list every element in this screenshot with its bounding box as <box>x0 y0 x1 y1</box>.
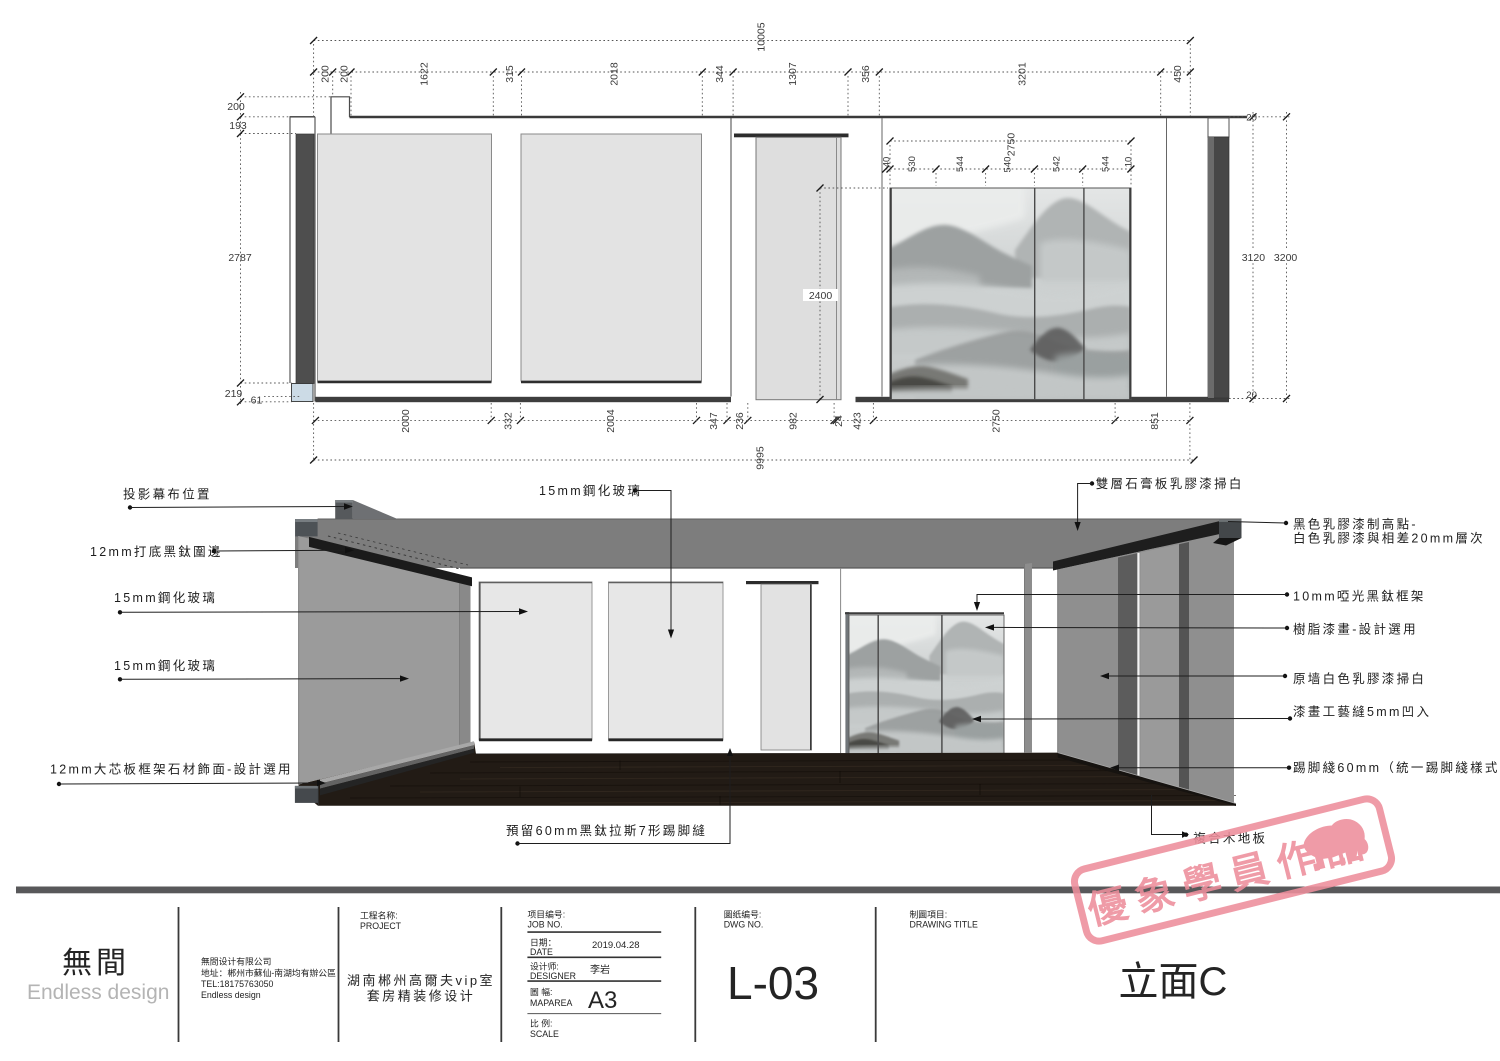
svg-text:540: 540 <box>1003 157 1014 173</box>
svg-text:219: 219 <box>225 388 243 400</box>
svg-text:SCALE: SCALE <box>530 1029 559 1039</box>
svg-text:15mm鋼化玻璃: 15mm鋼化玻璃 <box>114 659 217 673</box>
svg-text:982: 982 <box>787 412 799 430</box>
svg-text:200: 200 <box>227 101 245 113</box>
svg-text:踢脚綫60mm（統一踢脚綫樣式）: 踢脚綫60mm（統一踢脚綫樣式） <box>1293 760 1500 775</box>
svg-text:423: 423 <box>851 412 863 430</box>
svg-text:设计师:: 设计师: <box>530 961 559 972</box>
svg-text:542: 542 <box>1051 156 1062 172</box>
svg-text:2400: 2400 <box>809 290 833 302</box>
svg-text:450: 450 <box>1172 65 1184 83</box>
svg-text:L-03: L-03 <box>727 957 819 1009</box>
svg-text:DRAWING TITLE: DRAWING TITLE <box>910 920 979 930</box>
svg-text:套房精装修设计: 套房精装修设计 <box>367 989 476 1004</box>
svg-text:JOB NO.: JOB NO. <box>528 920 563 930</box>
svg-text:2750: 2750 <box>991 409 1003 433</box>
svg-text:356: 356 <box>860 65 872 83</box>
svg-text:12mm大芯板框架石材飾面-設計選用: 12mm大芯板框架石材飾面-設計選用 <box>50 761 293 776</box>
svg-text:24: 24 <box>833 415 845 427</box>
svg-text:344: 344 <box>714 65 726 83</box>
svg-text:日期：: 日期： <box>530 938 556 948</box>
svg-text:比 例:: 比 例: <box>530 1018 552 1029</box>
svg-text:3201: 3201 <box>1017 62 1029 86</box>
svg-text:3120: 3120 <box>1242 252 1266 264</box>
svg-text:20: 20 <box>1246 390 1257 401</box>
svg-text:236: 236 <box>734 412 746 430</box>
svg-text:15mm鋼化玻璃: 15mm鋼化玻璃 <box>114 591 217 605</box>
svg-text:9995: 9995 <box>755 446 767 470</box>
svg-text:無間: 無間 <box>62 947 130 980</box>
svg-text:544: 544 <box>955 156 966 172</box>
svg-text:Endless design: Endless design <box>27 981 169 1004</box>
svg-text:1307: 1307 <box>787 62 799 86</box>
svg-text:40: 40 <box>882 157 893 168</box>
svg-text:圖纸编号:: 圖纸编号: <box>724 909 762 920</box>
svg-text:10mm啞光黑鈦框架: 10mm啞光黑鈦框架 <box>1293 588 1426 603</box>
svg-text:15mm鋼化玻璃: 15mm鋼化玻璃 <box>539 484 642 498</box>
svg-text:项目编号:: 项目编号: <box>528 909 566 920</box>
svg-text:白色乳膠漆與相差20mm層次: 白色乳膠漆與相差20mm層次 <box>1293 530 1485 545</box>
svg-text:530: 530 <box>907 156 918 172</box>
svg-text:DESIGNER: DESIGNER <box>530 971 576 981</box>
svg-text:李岩: 李岩 <box>590 963 610 976</box>
svg-text:3200: 3200 <box>1274 252 1298 264</box>
svg-text:地址：郴州市蘇仙-南湖均有辦公區: 地址：郴州市蘇仙-南湖均有辦公區 <box>201 967 336 978</box>
svg-text:1622: 1622 <box>419 62 431 86</box>
svg-text:漆畫工藝縫5mm凹入: 漆畫工藝縫5mm凹入 <box>1293 704 1431 719</box>
svg-text:圖 幅:: 圖 幅: <box>530 986 552 997</box>
svg-text:2004: 2004 <box>605 409 617 433</box>
svg-text:預留60mm黑鈦拉斯7形踢脚縫: 預留60mm黑鈦拉斯7形踢脚縫 <box>506 823 707 838</box>
svg-text:湖南郴州高爾夫vip室: 湖南郴州高爾夫vip室 <box>347 973 495 988</box>
svg-text:332: 332 <box>502 412 514 430</box>
svg-text:樹脂漆畫-設計選用: 樹脂漆畫-設計選用 <box>1293 622 1418 637</box>
svg-text:2018: 2018 <box>608 62 620 86</box>
svg-text:315: 315 <box>504 65 516 83</box>
svg-text:12mm打底黑鈦圍邊: 12mm打底黑鈦圍邊 <box>90 544 223 559</box>
svg-text:TEL:18175763050: TEL:18175763050 <box>201 979 274 989</box>
svg-text:黑色乳膠漆制高點-: 黑色乳膠漆制高點- <box>1293 516 1418 531</box>
svg-text:2787: 2787 <box>228 252 252 264</box>
svg-text:制圖項目:: 制圖項目: <box>910 909 948 920</box>
svg-text:851: 851 <box>1149 412 1161 430</box>
svg-text:投影幕布位置: 投影幕布位置 <box>123 486 212 501</box>
svg-text:雙層石膏板乳膠漆掃白: 雙層石膏板乳膠漆掃白 <box>1096 476 1244 491</box>
svg-text:2019.04.28: 2019.04.28 <box>592 940 640 951</box>
svg-text:工程名称:: 工程名称: <box>360 910 398 921</box>
svg-text:MAPAREA: MAPAREA <box>530 998 572 1008</box>
svg-text:Endless design: Endless design <box>201 990 261 1000</box>
svg-text:無間设计有限公司: 無間设计有限公司 <box>201 956 271 967</box>
svg-text:2000: 2000 <box>400 409 412 433</box>
svg-text:61: 61 <box>251 395 263 407</box>
svg-text:193: 193 <box>229 120 247 132</box>
svg-text:200: 200 <box>339 65 351 83</box>
svg-text:立面C: 立面C <box>1119 960 1228 1004</box>
svg-text:DWG NO.: DWG NO. <box>724 920 764 930</box>
svg-text:原墙白色乳膠漆掃白: 原墙白色乳膠漆掃白 <box>1293 671 1426 686</box>
svg-text:200: 200 <box>320 65 332 83</box>
svg-text:347: 347 <box>708 412 720 430</box>
svg-text:20: 20 <box>1246 113 1257 124</box>
svg-text:2750: 2750 <box>1006 133 1018 157</box>
svg-text:10: 10 <box>1124 157 1135 168</box>
svg-text:DATE: DATE <box>530 947 553 957</box>
svg-text:PROJECT: PROJECT <box>360 921 402 931</box>
svg-text:10005: 10005 <box>756 22 768 51</box>
svg-text:544: 544 <box>1101 156 1112 172</box>
svg-text:A3: A3 <box>588 987 617 1014</box>
